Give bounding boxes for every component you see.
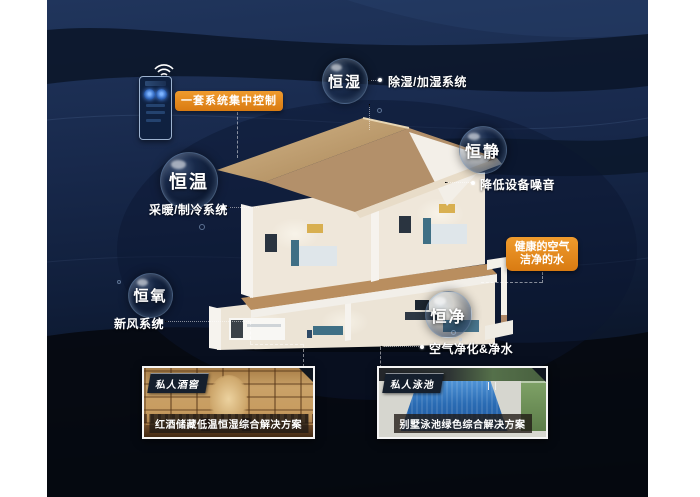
connector-temp-to-house [227, 207, 259, 208]
connector-quiet-to-house [445, 182, 471, 183]
corner-fold-icon [532, 368, 546, 382]
panel-header-bar [145, 81, 166, 86]
bubble-constant-quiet: 恒静 [459, 126, 507, 174]
bubble-sparkle [377, 108, 382, 113]
note-air-water-purification: 空气净化&净水 [429, 340, 513, 357]
panel-row [146, 111, 165, 114]
corner-fold-icon [299, 368, 313, 382]
panel-dials [143, 89, 168, 100]
dial-knob-icon [156, 89, 167, 100]
bubble-constant-humidity: 恒湿 [322, 58, 368, 104]
poster-canvas: 一套系统集中控制 恒湿 恒静 恒温 恒氧 恒净 除湿/加湿系统 降低设备噪音 采… [0, 0, 700, 497]
pool-ladder-icon [488, 382, 496, 390]
bubble-label: 恒氧 [133, 285, 167, 306]
note-dot [378, 78, 382, 82]
bubble-sparkle [199, 224, 205, 230]
connector-health-left [481, 282, 542, 283]
wine-center-arch [210, 375, 247, 415]
bubble-constant-oxygen: 恒氧 [128, 273, 173, 318]
smart-control-panel-device [139, 76, 172, 140]
connector-humidity-to-roof [369, 104, 370, 130]
central-control-callout: 一套系统集中控制 [175, 91, 283, 111]
bubble-label: 恒净 [430, 303, 466, 327]
note-dot [159, 320, 163, 324]
health-callout-line1: 健康的空气 [510, 241, 574, 254]
healthy-air-water-callout: 健康的空气 洁净的水 [506, 237, 578, 271]
note-heating-cooling-system: 采暖/制冷系统 [149, 201, 228, 218]
pool-photo-caption: 别墅泳池绿色综合解决方案 [394, 414, 532, 433]
wine-photo-caption: 红酒储藏低温恒湿综合解决方案 [149, 414, 308, 433]
dial-knob-icon [144, 89, 155, 100]
connector-control-to-house [237, 112, 238, 158]
wine-cellar-photo: 私人酒窖 红酒储藏低温恒湿综合解决方案 [142, 366, 315, 439]
bubble-label: 恒湿 [328, 71, 362, 92]
note-noise-reduction: 降低设备噪音 [480, 176, 555, 193]
bubble-constant-purity: 恒净 [425, 291, 472, 338]
bubble-label: 恒温 [169, 168, 209, 194]
health-callout-line2: 洁净的水 [510, 254, 574, 267]
connector-to-pool-photo [380, 347, 381, 368]
connector-to-wine-photo [303, 344, 304, 367]
note-fresh-air-system: 新风系统 [114, 315, 164, 332]
note-dot [420, 345, 424, 349]
connector-oxygen-to-house [165, 321, 251, 322]
wine-photo-badge: 私人酒窖 [147, 373, 209, 393]
note-dot [221, 206, 225, 210]
panel-row [146, 119, 161, 122]
note-dot [471, 181, 475, 185]
artwork-panel: 一套系统集中控制 恒湿 恒静 恒温 恒氧 恒净 除湿/加湿系统 降低设备噪音 采… [47, 0, 648, 497]
connector-pure-left [381, 346, 421, 347]
bubble-sparkle [117, 280, 121, 284]
panel-row [146, 104, 165, 107]
pool-photo: 私人泳池 别墅泳池绿色综合解决方案 [377, 366, 548, 439]
note-dehumidify-system: 除湿/加湿系统 [388, 73, 467, 90]
bubble-sparkle [451, 330, 456, 335]
connector-oxygen-elbow-down [250, 322, 251, 344]
bubble-label: 恒静 [465, 138, 501, 162]
pool-photo-badge: 私人泳池 [382, 373, 444, 393]
connector-humidity-dot [368, 80, 378, 81]
connector-oxygen-elbow-right [250, 344, 303, 345]
